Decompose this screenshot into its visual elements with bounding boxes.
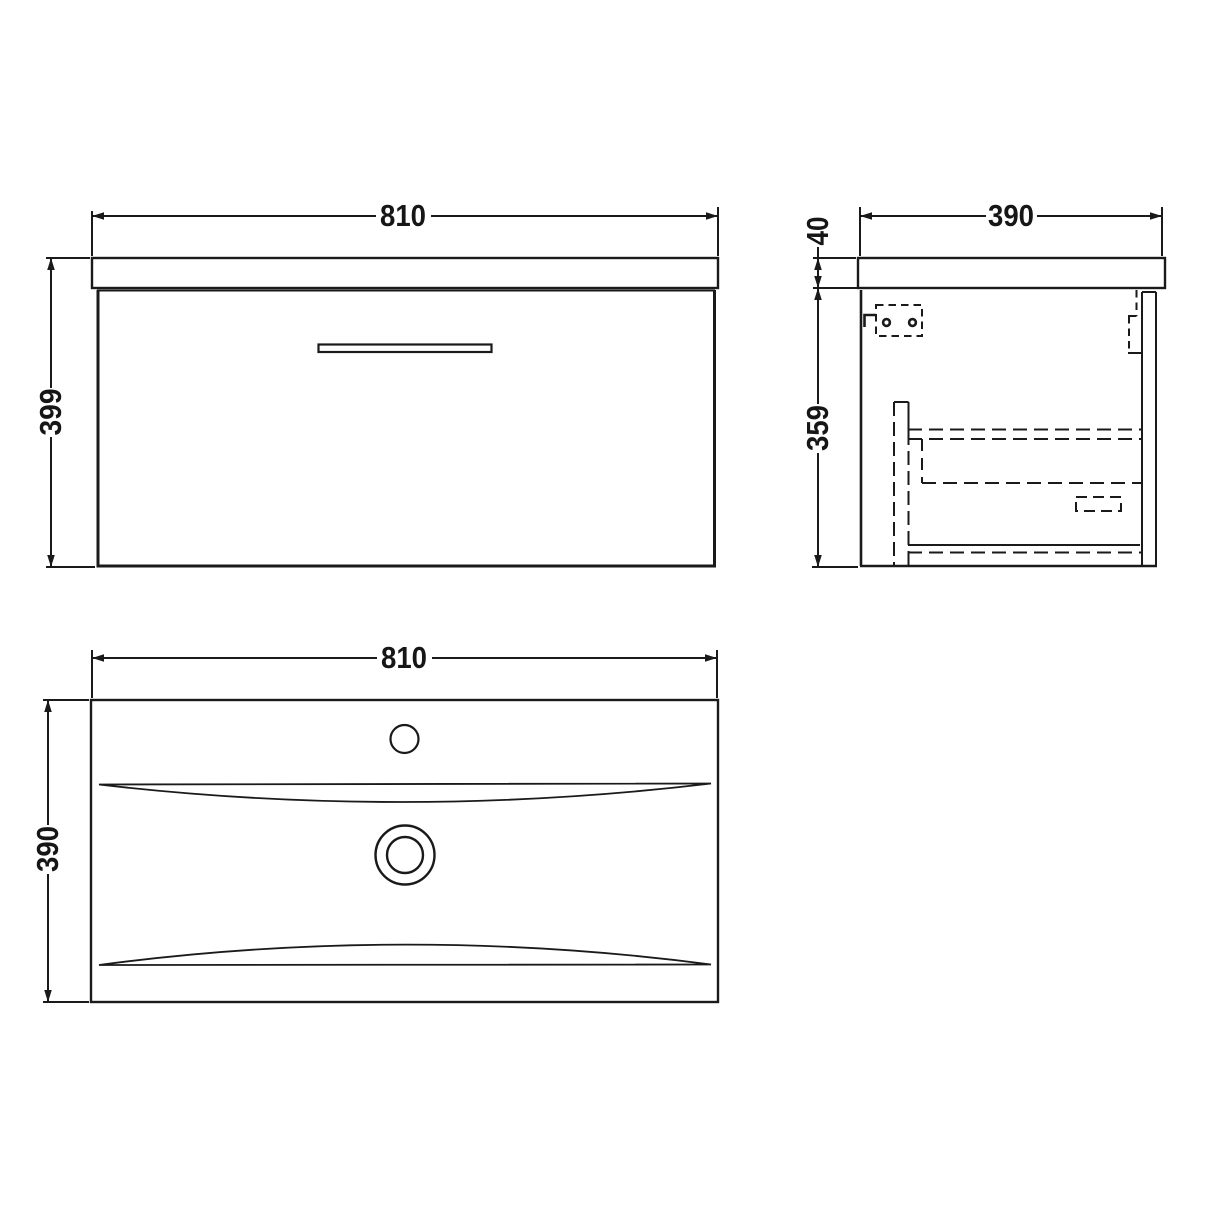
svg-text:359: 359 bbox=[800, 405, 835, 451]
svg-text:390: 390 bbox=[30, 826, 65, 872]
svg-text:810: 810 bbox=[380, 198, 426, 233]
svg-text:810: 810 bbox=[381, 640, 427, 675]
svg-text:390: 390 bbox=[988, 198, 1034, 233]
svg-text:40: 40 bbox=[800, 217, 835, 246]
svg-text:399: 399 bbox=[33, 389, 68, 436]
